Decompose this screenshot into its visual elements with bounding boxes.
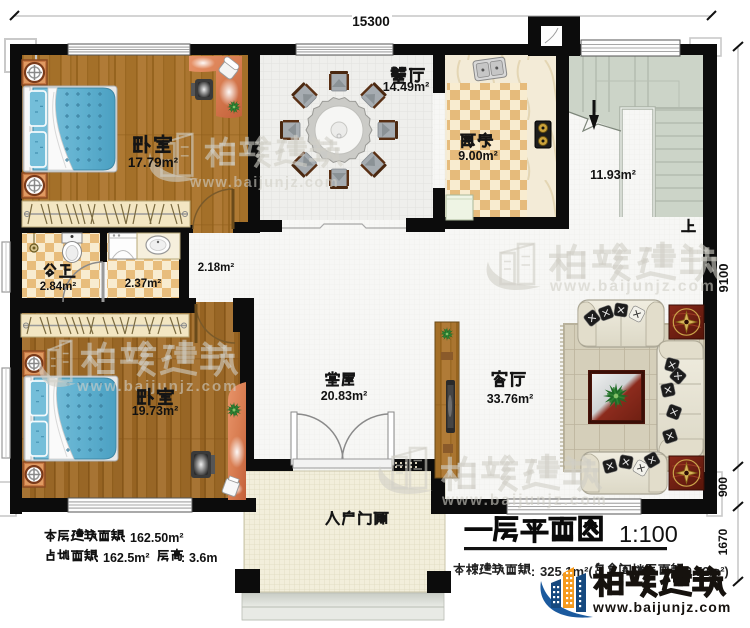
svg-text::: : — [181, 550, 185, 565]
svg-text:2.18m²: 2.18m² — [198, 262, 235, 274]
svg-text:162.5m²: 162.5m² — [103, 551, 150, 565]
svg-text:900: 900 — [716, 477, 730, 497]
svg-text:www.baijunjz.com: www.baijunjz.com — [592, 599, 731, 615]
svg-text:162.50m²: 162.50m² — [130, 531, 184, 545]
svg-text:33.76m²: 33.76m² — [487, 392, 534, 406]
svg-text:15300: 15300 — [352, 14, 390, 29]
svg-text:11.93m²: 11.93m² — [590, 168, 636, 182]
svg-text:1670: 1670 — [716, 528, 730, 555]
svg-text:17.79m²: 17.79m² — [128, 155, 179, 170]
svg-text:www.baijunjz.com: www.baijunjz.com — [189, 175, 339, 191]
svg-text:1:100: 1:100 — [619, 521, 678, 547]
svg-text:14.49m²: 14.49m² — [383, 80, 430, 94]
svg-text:www.baijunjz.com: www.baijunjz.com — [441, 492, 608, 509]
svg-text::: : — [531, 564, 535, 579]
svg-text:19.73m²: 19.73m² — [132, 404, 179, 418]
svg-text:3.6m: 3.6m — [189, 551, 218, 565]
svg-text:2.84m²: 2.84m² — [40, 281, 77, 293]
svg-text:www.baijunjz.com: www.baijunjz.com — [549, 278, 716, 295]
svg-text:9.00m²: 9.00m² — [458, 149, 498, 163]
svg-text:2.37m²: 2.37m² — [125, 278, 162, 290]
svg-text:20.83m²: 20.83m² — [321, 389, 368, 403]
svg-text::: : — [122, 530, 126, 545]
svg-text::: : — [95, 550, 99, 565]
